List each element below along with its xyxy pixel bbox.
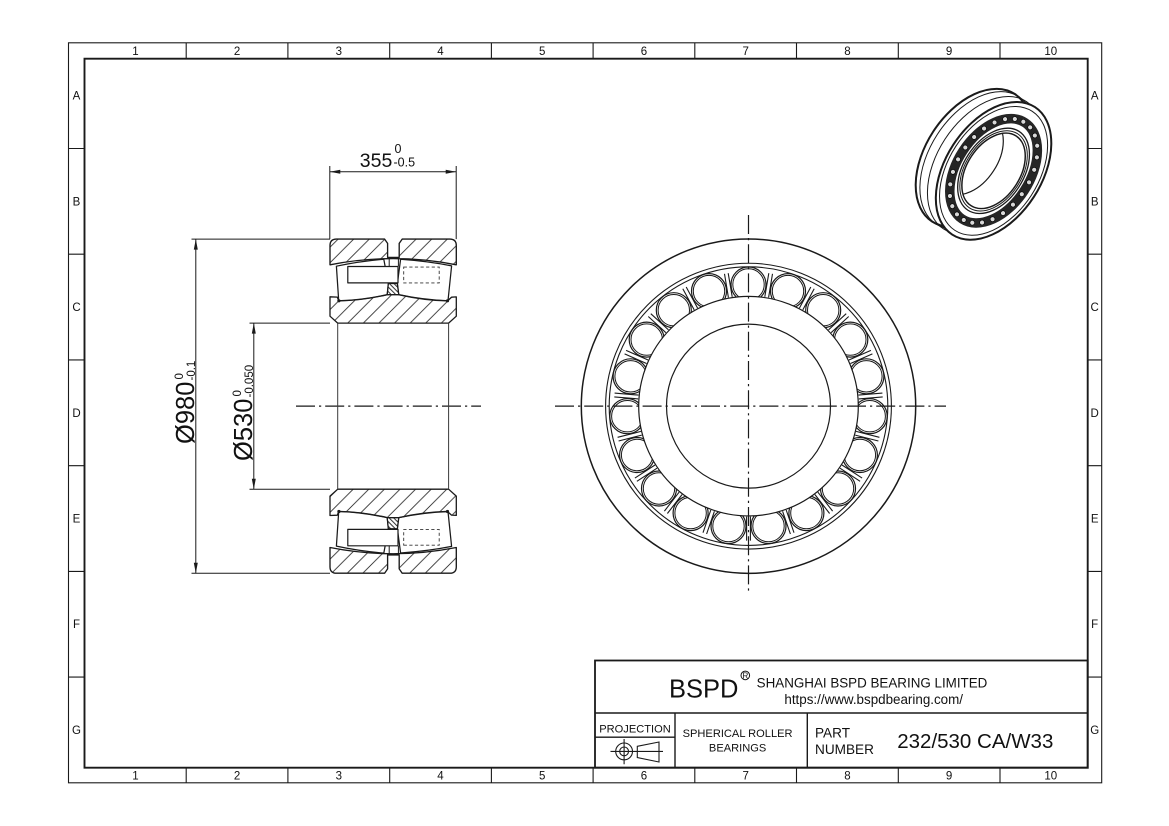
svg-text:E: E xyxy=(1091,514,1099,526)
svg-text:BSPD: BSPD xyxy=(669,675,738,703)
svg-text:3: 3 xyxy=(336,771,342,783)
svg-text:BEARINGS: BEARINGS xyxy=(709,742,766,754)
svg-text:-0.5: -0.5 xyxy=(394,155,416,169)
svg-text:G: G xyxy=(72,725,81,737)
svg-text:B: B xyxy=(73,196,81,208)
svg-text:-0.1: -0.1 xyxy=(186,361,198,381)
svg-text:7: 7 xyxy=(742,46,748,58)
svg-text:NUMBER: NUMBER xyxy=(815,742,874,757)
svg-text:10: 10 xyxy=(1044,771,1057,783)
svg-text:-0.050: -0.050 xyxy=(244,365,256,398)
svg-text:6: 6 xyxy=(641,46,647,58)
svg-text:5: 5 xyxy=(539,771,545,783)
svg-text:232/530 CA/W33: 232/530 CA/W33 xyxy=(897,730,1053,753)
svg-text:F: F xyxy=(1091,619,1098,631)
svg-text:C: C xyxy=(72,302,80,314)
svg-text:A: A xyxy=(1091,91,1099,103)
svg-text:B: B xyxy=(1091,196,1099,208)
svg-text:C: C xyxy=(1091,302,1099,314)
svg-text:PART: PART xyxy=(815,726,850,741)
svg-text:G: G xyxy=(1090,725,1099,737)
svg-text:D: D xyxy=(72,408,80,420)
svg-text:6: 6 xyxy=(641,771,647,783)
svg-text:1: 1 xyxy=(132,771,138,783)
svg-text:2: 2 xyxy=(234,771,240,783)
svg-text:9: 9 xyxy=(946,771,952,783)
svg-text:Ø530: Ø530 xyxy=(230,399,258,461)
svg-text:5: 5 xyxy=(539,46,545,58)
svg-text:4: 4 xyxy=(437,46,444,58)
svg-text:2: 2 xyxy=(234,46,240,58)
svg-text:8: 8 xyxy=(844,46,850,58)
svg-text:3: 3 xyxy=(336,46,342,58)
svg-text:D: D xyxy=(1091,408,1099,420)
svg-text:E: E xyxy=(73,514,81,526)
svg-text:PROJECTION: PROJECTION xyxy=(599,723,671,735)
svg-text:0: 0 xyxy=(232,390,244,396)
svg-text:1: 1 xyxy=(132,46,138,58)
svg-text:9: 9 xyxy=(946,46,952,58)
svg-text:10: 10 xyxy=(1044,46,1057,58)
svg-text:SPHERICAL ROLLER: SPHERICAL ROLLER xyxy=(683,728,793,740)
svg-text:8: 8 xyxy=(844,771,850,783)
svg-text:https://www.bspdbearing.com/: https://www.bspdbearing.com/ xyxy=(784,692,963,707)
svg-text:A: A xyxy=(73,91,81,103)
svg-text:R: R xyxy=(742,671,748,680)
svg-text:355: 355 xyxy=(360,150,393,172)
svg-text:0: 0 xyxy=(174,373,186,379)
svg-text:7: 7 xyxy=(742,771,748,783)
svg-text:SHANGHAI BSPD BEARING LIMITED: SHANGHAI BSPD BEARING LIMITED xyxy=(757,675,988,690)
svg-text:F: F xyxy=(73,619,80,631)
svg-text:Ø980: Ø980 xyxy=(172,382,200,444)
svg-text:0: 0 xyxy=(395,142,402,156)
svg-text:4: 4 xyxy=(437,771,444,783)
